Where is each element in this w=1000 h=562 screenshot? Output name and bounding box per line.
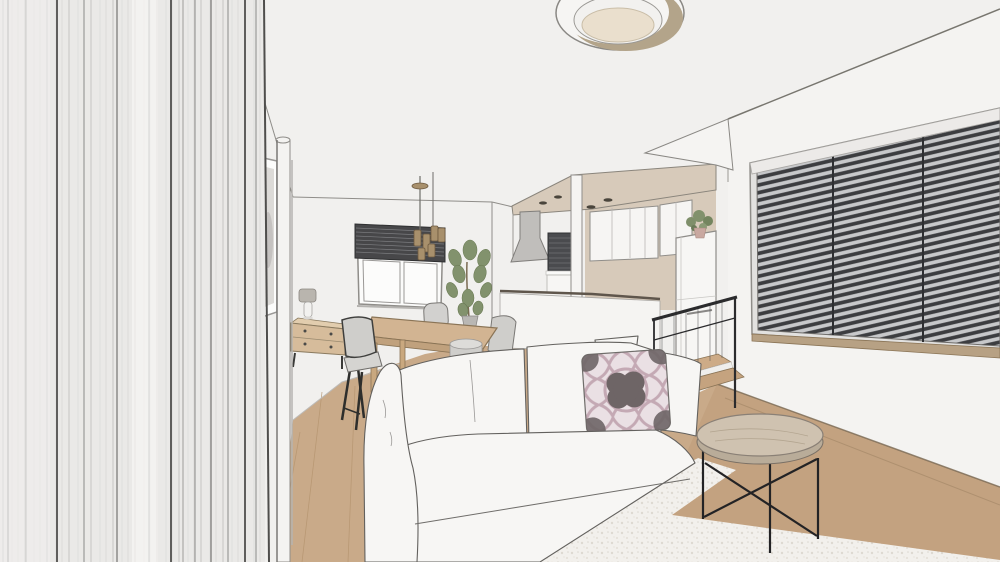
window-pane-right bbox=[404, 262, 437, 305]
left-drapery-panel bbox=[0, 0, 269, 562]
light-diffuser bbox=[582, 8, 654, 42]
chair-back bbox=[342, 317, 376, 357]
kitchen-column bbox=[571, 175, 582, 303]
kitchen-window-blind bbox=[546, 233, 574, 293]
plant-pot bbox=[694, 228, 706, 238]
scene-canvas bbox=[0, 0, 1000, 562]
drapery-highlight bbox=[132, 0, 158, 562]
interior-rendering bbox=[0, 0, 1000, 562]
plant-pot bbox=[462, 316, 478, 326]
upper-cabinets-left bbox=[590, 206, 658, 261]
window-pane-left bbox=[363, 260, 400, 303]
wall-pillar bbox=[276, 137, 292, 562]
